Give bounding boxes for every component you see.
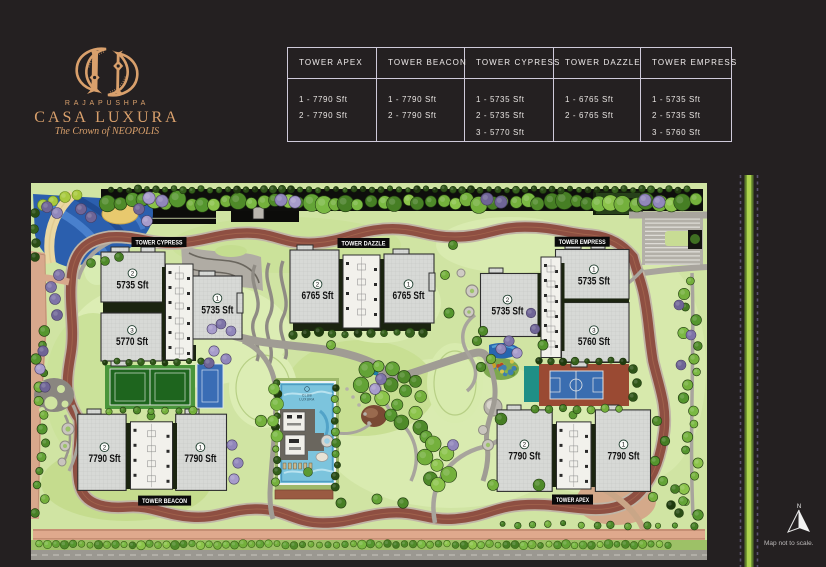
svg-text:1: 1 <box>407 282 411 289</box>
svg-text:7790 Sft: 7790 Sft <box>608 450 640 462</box>
svg-text:5735 Sft: 5735 Sft <box>492 306 524 318</box>
svg-text:5770 Sft: 5770 Sft <box>116 336 148 348</box>
svg-text:2: 2 <box>523 442 527 449</box>
svg-text:5760 Sft: 5760 Sft <box>578 336 610 348</box>
svg-text:5735 Sft: 5735 Sft <box>578 275 610 287</box>
svg-text:2: 2 <box>131 271 135 278</box>
svg-text:TOWER EMPRESS: TOWER EMPRESS <box>559 239 607 246</box>
svg-text:N: N <box>797 504 801 510</box>
svg-text:1: 1 <box>199 445 203 452</box>
svg-text:7790 Sft: 7790 Sft <box>508 450 540 462</box>
svg-text:7790 Sft: 7790 Sft <box>184 453 216 465</box>
svg-text:3: 3 <box>592 328 596 335</box>
svg-text:2: 2 <box>316 282 320 289</box>
svg-text:LUXURA: LUXURA <box>299 398 315 402</box>
svg-text:TOWER CYPRESS: TOWER CYPRESS <box>136 239 184 246</box>
svg-text:7790 Sft: 7790 Sft <box>89 453 121 465</box>
svg-text:1: 1 <box>592 267 596 274</box>
svg-text:TOWER BEACON: TOWER BEACON <box>142 498 187 505</box>
svg-text:TOWER APEX: TOWER APEX <box>556 497 590 504</box>
svg-text:2: 2 <box>506 297 510 304</box>
svg-text:1: 1 <box>622 442 626 449</box>
svg-text:5735 Sft: 5735 Sft <box>117 279 149 291</box>
svg-text:2: 2 <box>103 445 107 452</box>
svg-text:TOWER DAZZLE: TOWER DAZZLE <box>342 240 387 247</box>
svg-text:5735 Sft: 5735 Sft <box>201 304 233 316</box>
svg-text:6765 Sft: 6765 Sft <box>302 290 334 302</box>
svg-text:3: 3 <box>130 327 134 334</box>
svg-text:6765 Sft: 6765 Sft <box>393 290 425 302</box>
svg-text:1: 1 <box>216 296 220 303</box>
